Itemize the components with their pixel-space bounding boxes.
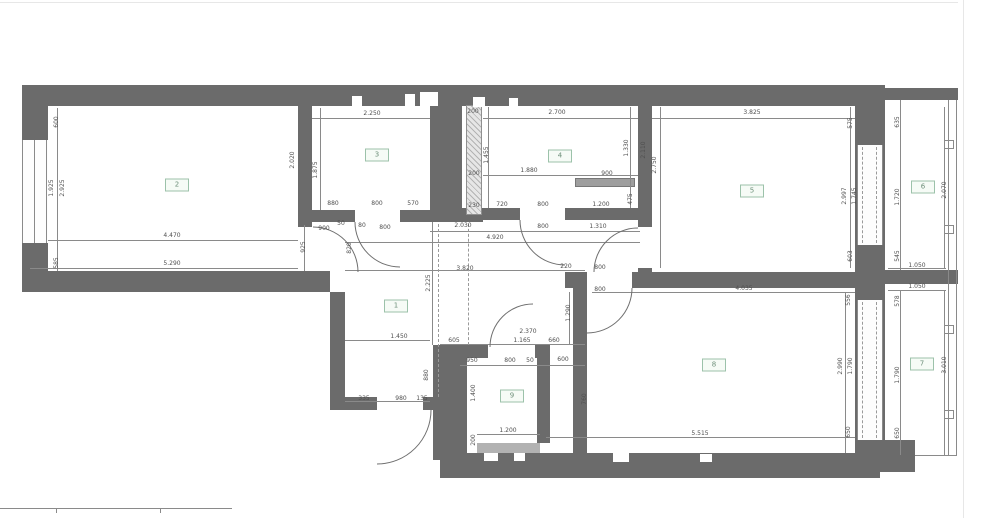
dimension-label: 1.450 [390, 334, 407, 340]
room-number-label: 5 [740, 185, 764, 198]
dimension-label: 800 [594, 265, 605, 271]
dimension-label: 575 [848, 117, 854, 128]
window-frame-line [22, 140, 23, 243]
dimension-label: 800 [371, 201, 382, 207]
dimension-label: 4.920 [486, 235, 503, 241]
wall [312, 210, 355, 222]
dimension-label: 1.310 [589, 224, 606, 230]
dimension-label: 650 [846, 426, 852, 437]
dimension-label: 200 [471, 434, 477, 445]
room-number-label: 8 [702, 359, 726, 372]
wall-niche [700, 454, 712, 462]
dimension-label: 635 [895, 116, 901, 127]
threshold-bar [477, 443, 540, 453]
dimension-label: 1.290 [566, 304, 572, 321]
dimension-label: 50 [526, 358, 534, 364]
dashed-reference-line [876, 302, 877, 438]
dimension-line [345, 242, 640, 243]
window-frame-line [857, 300, 858, 440]
dimension-line [592, 292, 855, 293]
dimension-label: 800 [379, 225, 390, 231]
dimension-label: 335 [358, 396, 369, 402]
wall [535, 345, 550, 358]
window-frame-line [882, 145, 883, 245]
wall [440, 453, 880, 478]
dimension-label: 5.290 [163, 261, 180, 267]
dimension-label: 1.745 [852, 187, 858, 204]
dimension-label: 980 [395, 396, 406, 402]
page-edge-line [963, 0, 964, 518]
window-opening [22, 140, 48, 243]
dimension-line [888, 290, 946, 291]
dimension-label: 1.880 [520, 168, 537, 174]
glazing-mullion [944, 140, 954, 149]
wall-niche [405, 94, 415, 106]
wall-niche [352, 96, 362, 106]
dimension-line [652, 118, 855, 119]
dimension-label: 2.250 [363, 111, 380, 117]
window-opening [857, 145, 883, 245]
window-opening [857, 300, 883, 440]
dimension-label: 880 [327, 201, 338, 207]
dimension-label: 3.010 [942, 356, 948, 373]
room-number-label: 7 [910, 358, 934, 371]
window-frame-line [882, 300, 883, 440]
glazing-mullion [944, 410, 954, 419]
dashed-reference-line [468, 224, 469, 345]
dimension-line [160, 508, 161, 513]
dimension-line [312, 118, 430, 119]
dimension-label: 3.825 [743, 110, 760, 116]
dimension-label: 800 [504, 358, 515, 364]
dashed-reference-line [862, 147, 863, 243]
vent-shaft-hatch [466, 105, 482, 215]
room-number-label: 4 [548, 150, 572, 163]
dimension-label: 1.050 [908, 284, 925, 290]
dimension-label: 950 [466, 358, 477, 364]
dimension-label: 556 [846, 294, 852, 305]
dimension-label: 135 [416, 396, 427, 402]
dimension-line [48, 240, 298, 241]
room-number-label: 1 [384, 300, 408, 313]
dimension-line [660, 107, 661, 268]
dashed-reference-line [438, 224, 439, 397]
dimension-label: 3.820 [456, 266, 473, 272]
wall [400, 210, 430, 222]
dimension-label: 1.200 [499, 428, 516, 434]
dimension-label: 2.925 [60, 179, 66, 196]
dimension-label: 1.455 [484, 146, 490, 163]
dimension-label: 900 [601, 171, 612, 177]
dimension-label: 760 [582, 393, 588, 404]
wall [22, 85, 48, 140]
glazing-mullion [944, 325, 954, 334]
dimension-label: 1.165 [513, 338, 530, 344]
dimension-label: 2.070 [942, 181, 948, 198]
dimension-line [320, 108, 321, 210]
dimension-label: 925 [301, 241, 307, 252]
dimension-label: 585 [54, 257, 60, 268]
dimension-label: 570 [407, 201, 418, 207]
dimension-label: 5.515 [691, 431, 708, 437]
wall [483, 208, 520, 220]
dimension-line [56, 508, 57, 513]
room-number-label: 3 [365, 149, 389, 162]
dimension-label: 720 [496, 202, 507, 208]
dimension-label: 603 [848, 250, 854, 261]
dimension-label: 600 [557, 357, 568, 363]
window-frame-line [34, 140, 35, 243]
dimension-line [477, 434, 540, 435]
dimension-label: 200 [467, 109, 478, 115]
dimension-line [345, 340, 430, 341]
vent-bar [575, 178, 635, 187]
dimension-label: 50 [337, 221, 345, 227]
dimension-label: 800 [594, 287, 605, 293]
dimension-label: 2.997 [842, 187, 848, 204]
dimension-line [30, 268, 298, 269]
room-number-label: 9 [500, 390, 524, 403]
dimension-label: 2.990 [838, 357, 844, 374]
dimension-line [440, 344, 585, 345]
dimension-label: 2.370 [519, 329, 536, 335]
wall-niche [509, 98, 518, 107]
dimension-label: 1.330 [624, 139, 630, 156]
wall [330, 292, 345, 410]
door-arc [377, 410, 431, 464]
dimension-line [430, 231, 640, 232]
dimension-line [483, 118, 638, 119]
dimension-label: 4.470 [163, 233, 180, 239]
dimension-label: 80 [358, 223, 366, 229]
dimension-line [948, 100, 949, 456]
wall-niche [473, 97, 485, 107]
wall-niche [514, 453, 525, 461]
window-frame-line [46, 140, 47, 243]
dashed-reference-line [876, 147, 877, 243]
wall [537, 358, 550, 443]
dimension-label: 1.875 [313, 161, 319, 178]
dimension-label: 475 [628, 193, 634, 204]
dimension-label: 650 [895, 427, 901, 438]
wall [298, 106, 312, 227]
dimension-label: 1.050 [908, 263, 925, 269]
dimension-label: 800 [537, 202, 548, 208]
dimension-label: 2.225 [426, 274, 432, 291]
dimension-label: 2.020 [290, 151, 296, 168]
dimension-label: 1.790 [848, 357, 854, 374]
dimension-label: 900 [318, 226, 329, 232]
dimension-label: 2.030 [454, 223, 471, 229]
dimension-label: 230 [468, 203, 479, 209]
dimension-label: 1.200 [592, 202, 609, 208]
page-edge-line [0, 2, 958, 3]
dimension-line [432, 222, 433, 345]
dimension-line [57, 108, 58, 271]
dimension-label: 1.400 [471, 384, 477, 401]
dimension-label: 800 [537, 224, 548, 230]
dimension-line [460, 365, 585, 366]
dimension-line [915, 455, 956, 456]
glazing-mullion [944, 225, 954, 234]
dimension-label: 2.750 [652, 156, 658, 173]
dimension-label: 200 [468, 171, 479, 177]
dimension-label: 605 [448, 338, 459, 344]
dimension-label: 600 [54, 116, 60, 127]
wall [22, 271, 330, 292]
room-number-label: 6 [911, 181, 935, 194]
dimension-label: 2.700 [548, 110, 565, 116]
wall [565, 208, 638, 220]
dimension-line [483, 175, 638, 176]
dimension-label: 578 [895, 295, 901, 306]
wall [298, 272, 312, 292]
dimension-line [956, 100, 957, 456]
door-arc [587, 288, 632, 333]
floor-plan: 1234567896001.9252.9255854.4705.2909252.… [0, 0, 1000, 518]
wall [330, 397, 377, 410]
dimension-label: 820 [347, 242, 353, 253]
wall-niche [420, 92, 438, 106]
dimension-line [0, 508, 232, 509]
dimension-label: 4.035 [735, 286, 752, 292]
dimension-label: 660 [548, 338, 559, 344]
wall-niche [613, 453, 629, 462]
dashed-reference-line [862, 302, 863, 438]
dimension-label: 1.925 [49, 179, 55, 196]
dimension-label: 2.110 [641, 141, 647, 158]
dimension-label: 220 [560, 264, 571, 270]
dimension-label: 880 [424, 369, 430, 380]
room-number-label: 2 [165, 179, 189, 192]
dimension-label: 1.720 [895, 188, 901, 205]
dimension-line [546, 437, 855, 438]
dimension-label: 1.790 [895, 366, 901, 383]
dimension-label: 545 [895, 250, 901, 261]
wall-niche [484, 453, 498, 461]
